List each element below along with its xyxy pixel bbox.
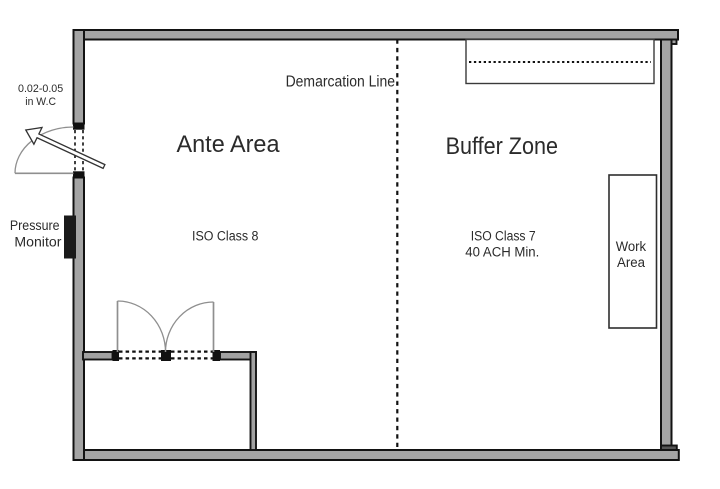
svg-text:Pressure: Pressure (10, 218, 60, 233)
svg-text:ISO Class 7: ISO Class 7 (471, 228, 536, 243)
svg-text:Buffer Zone: Buffer Zone (446, 133, 558, 160)
svg-text:ISO Class 8: ISO Class 8 (192, 229, 259, 244)
svg-text:Work: Work (616, 239, 647, 254)
svg-text:Ante Area: Ante Area (177, 131, 281, 158)
svg-text:in W.C: in W.C (25, 96, 56, 108)
svg-text:40 ACH Min.: 40 ACH Min. (465, 245, 539, 260)
svg-text:Demarcation Line: Demarcation Line (286, 74, 395, 91)
svg-text:0.02-0.05: 0.02-0.05 (18, 83, 63, 95)
svg-text:Monitor: Monitor (14, 234, 62, 249)
svg-text:Area: Area (617, 255, 645, 270)
